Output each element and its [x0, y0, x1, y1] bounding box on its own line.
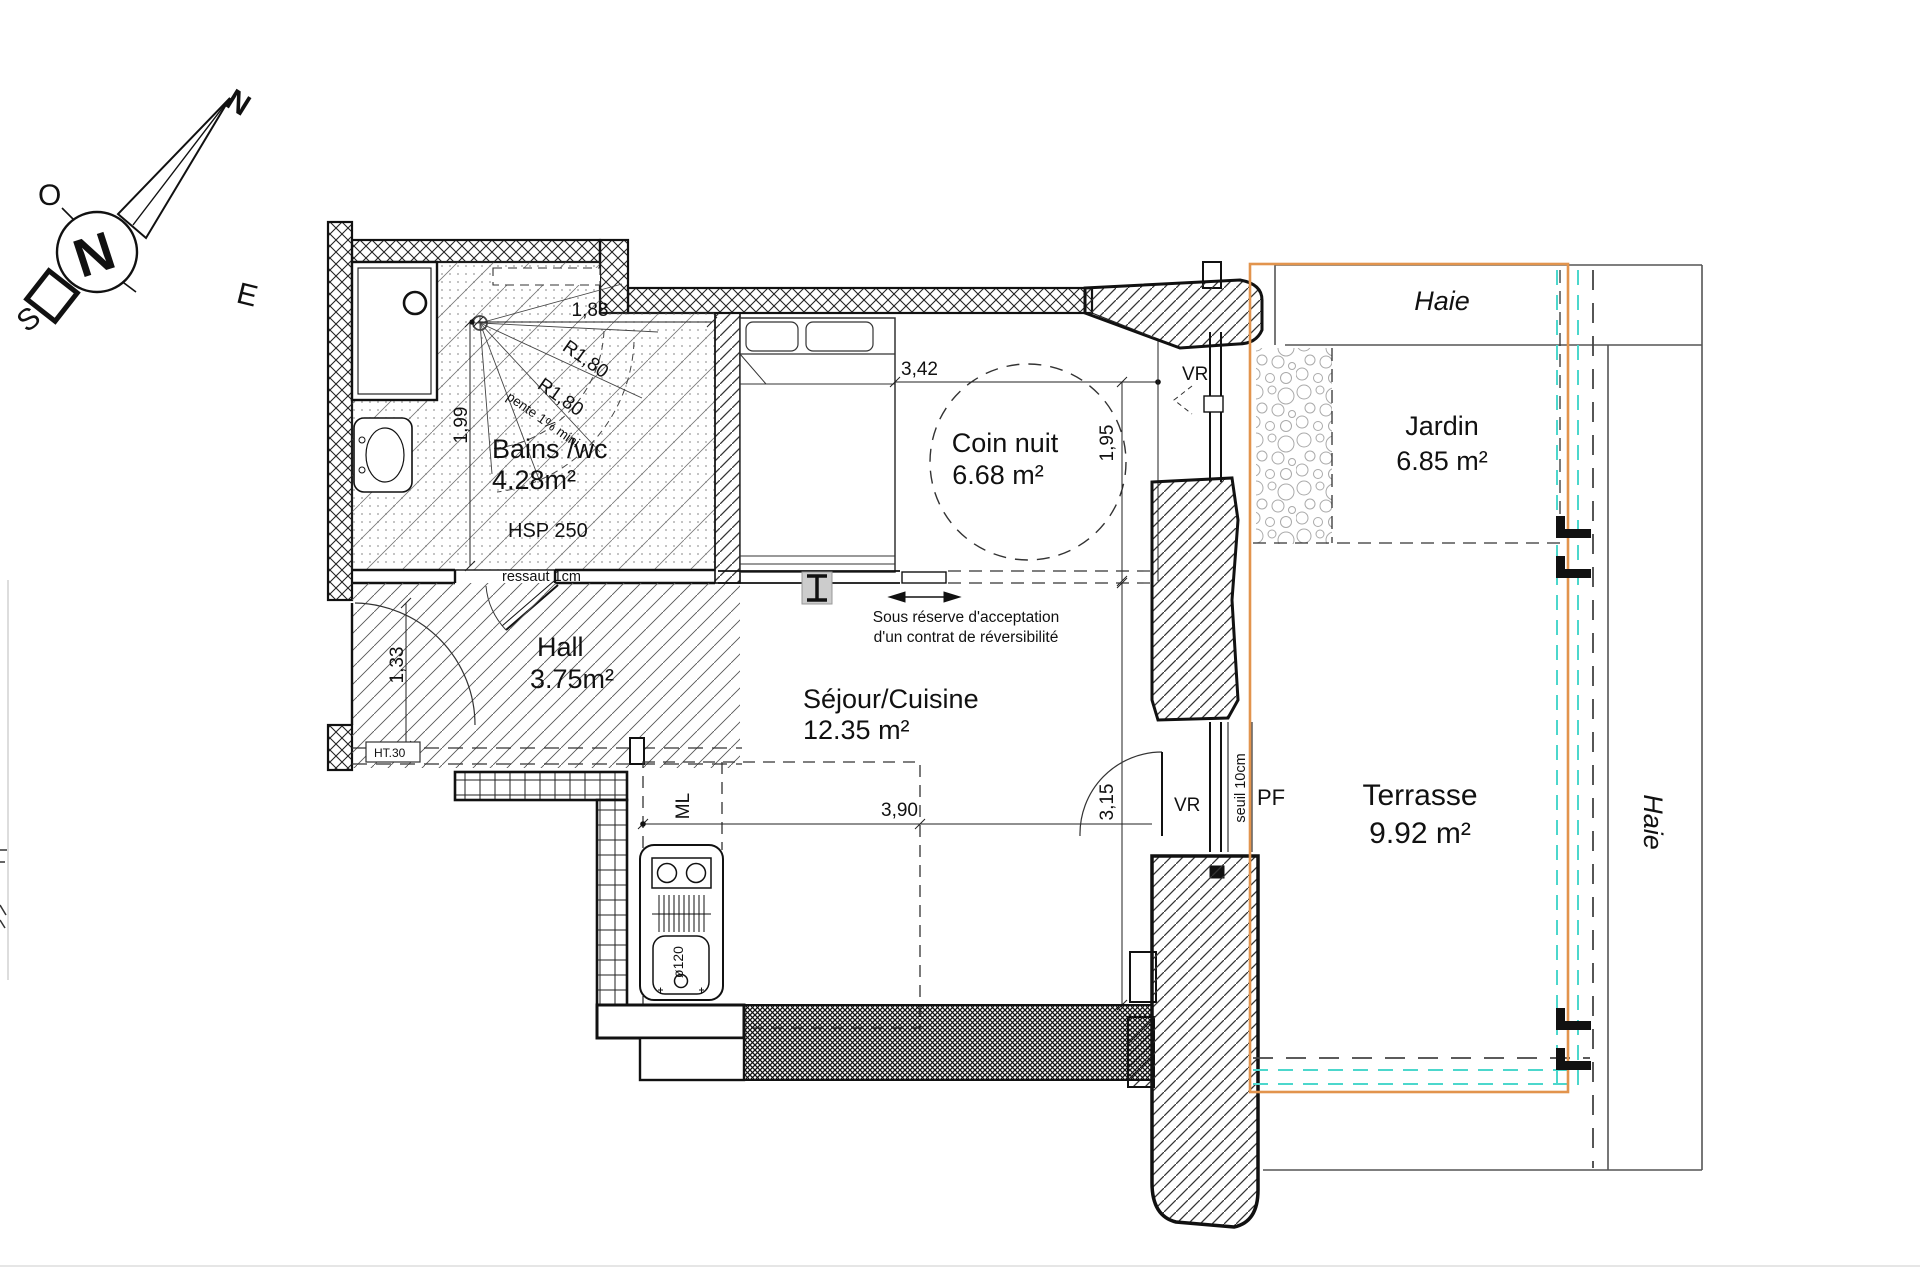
bottom-wall-step	[640, 1038, 744, 1080]
south-wall	[744, 1005, 1152, 1080]
living-width-dim: 3,90	[881, 800, 918, 821]
living-height-dim: 3,15	[1097, 784, 1118, 821]
reversibility-note-1: Sous réserve d'acceptation	[873, 609, 1059, 626]
kitchen-bottom-wall	[597, 1005, 744, 1038]
floor-plan-drawing: N O E S N	[0, 0, 1920, 1269]
bay-pier	[1085, 280, 1262, 348]
terrace-name: Terrasse	[1362, 779, 1477, 812]
exterior-areas: Haie Haie Jardin 6.85 m² Terrasse 9.92 m…	[1250, 264, 1702, 1170]
sink-diameter: ø120	[670, 946, 686, 978]
bottom-column	[1152, 856, 1258, 1227]
tiled-wall-vertical	[597, 800, 627, 1005]
wall-end-block	[630, 738, 644, 764]
bed	[740, 318, 895, 572]
garden-area: 6.85 m²	[1396, 446, 1488, 476]
bedroom-height-dim: 1,95	[1097, 425, 1118, 462]
duct-dashed-box	[493, 268, 600, 285]
bedroom: Coin nuit 6.68 m² 3,42 1,95	[740, 318, 1161, 586]
bedroom-name: Coin nuit	[952, 428, 1059, 458]
bathroom: 1,88 1,99 R1,80 R1,80 pente 1% mini Bain…	[352, 262, 740, 630]
hedge-top-label: Haie	[1414, 286, 1470, 316]
living-window-label: VR	[1174, 795, 1200, 816]
hall-name: Hall	[537, 632, 584, 662]
slide-arrow	[889, 592, 960, 602]
terrace-door-swing	[1080, 752, 1162, 836]
shower-drain	[404, 292, 426, 314]
reversibility-note-2: d'un contrat de réversibilité	[874, 629, 1059, 646]
french-door-label: PF	[1257, 785, 1285, 810]
left-wall-upper	[328, 222, 352, 600]
compass-north-label: N	[220, 83, 256, 122]
compass-east-label: E	[233, 277, 260, 314]
bathroom-width-dim: 1,88	[572, 300, 609, 321]
living-name: Séjour/Cuisine	[803, 684, 979, 714]
garden-name: Jardin	[1405, 411, 1479, 441]
bathroom-ceiling-height: HSP 250	[508, 520, 588, 542]
bedroom-window-label: VR	[1182, 364, 1208, 385]
terrace-area: 9.92 m²	[1369, 817, 1471, 850]
bathroom-name: Bains /wc	[492, 434, 608, 464]
floor-plan-page: N O E S N	[0, 0, 1920, 1269]
bedroom-width-dim: 3,42	[901, 359, 938, 380]
living-area: 12.35 m²	[803, 715, 910, 745]
hedge-right-label: Haie	[1638, 794, 1668, 850]
gravel-strip	[1256, 348, 1332, 544]
hall-dim-label: 1,33	[387, 647, 408, 684]
bathroom-height-dim: 1,99	[451, 407, 472, 444]
left-wall-stub	[328, 725, 352, 770]
bathroom-bedroom-partition	[715, 313, 740, 583]
washer-label: ML	[673, 793, 694, 819]
hall: 1,33 Hall 3.75m² HT.30	[328, 583, 742, 768]
compass-west-label: O	[38, 179, 61, 212]
bathroom-area: 4.28m²	[492, 465, 576, 495]
bedroom-area: 6.68 m²	[952, 460, 1044, 490]
washbasin	[354, 418, 412, 492]
bathroom-top-wall	[352, 240, 600, 262]
bedroom-window	[1204, 332, 1223, 482]
threshold-label: seuil 10cm	[1233, 753, 1249, 822]
steel-column	[802, 572, 832, 604]
sliding-partition: Sous réserve d'acceptation d'un contrat …	[718, 571, 1152, 646]
right-facade: VR VR seuil 10cm PF	[1085, 262, 1285, 1227]
fence-brackets	[1556, 516, 1591, 1070]
bathroom-step-note: ressaut 1cm	[502, 569, 581, 585]
mid-pier	[1152, 478, 1238, 720]
hall-area: 3.75m²	[530, 664, 614, 694]
main-top-wall	[628, 288, 1092, 313]
bottom-walls	[455, 772, 1152, 1080]
living-height-dim-line	[1117, 578, 1127, 1010]
ht30-label: HT.30	[374, 746, 406, 760]
compass-rose: N O E S N	[11, 83, 261, 339]
shower-tray	[352, 262, 437, 400]
page-artifacts	[0, 580, 1920, 1266]
tiled-wall-horizontal	[455, 772, 627, 800]
